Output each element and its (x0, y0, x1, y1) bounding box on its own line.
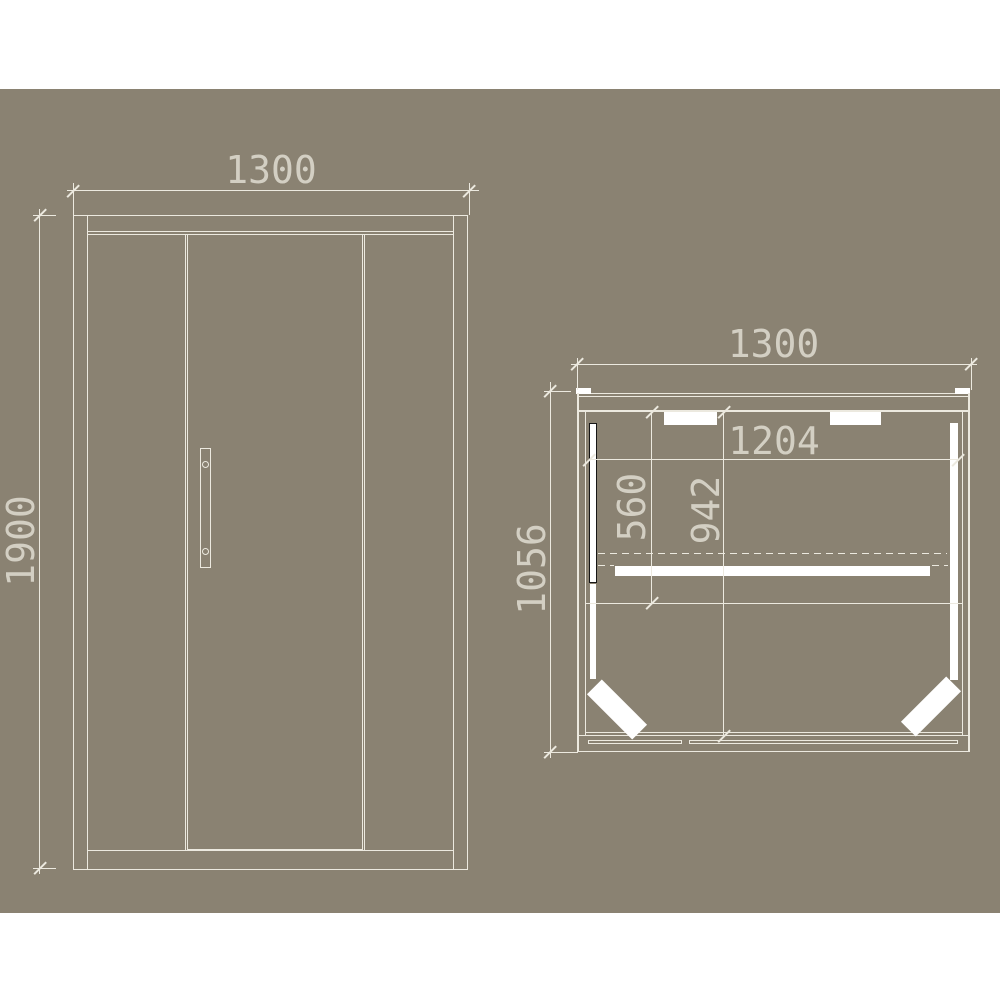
dim-ext-top (544, 391, 571, 392)
door-right-edge (362, 234, 363, 850)
left-glass-door-panel (589, 423, 596, 583)
dim-label-plan-width: 1300 (728, 325, 820, 363)
bench-front-hidden-line-right (932, 565, 948, 566)
bench-zone-line (585, 603, 962, 604)
front-band-inner-bottom (579, 410, 968, 411)
dim-label-interior-depth: 942 (687, 476, 725, 545)
left-panel-door-divider (185, 234, 186, 850)
dim-label-front-width: 1300 (225, 151, 317, 189)
dim-line (723, 412, 724, 736)
dim-ext-right (469, 183, 470, 215)
frame-right-inner-edge (453, 215, 454, 869)
left-glass-panel-extension (590, 584, 596, 680)
dim-ext-left (577, 358, 578, 390)
top-rail-bottom-line (87, 231, 454, 232)
page: 1300 1900 (0, 0, 1000, 1000)
handle-screw-top (202, 461, 209, 468)
back-track-right (689, 740, 958, 745)
dim-ext-top (33, 215, 56, 216)
dim-ext-bottom (544, 752, 578, 753)
corner-seat-right (900, 676, 960, 736)
frame-top-edge (73, 215, 468, 216)
door-roller-block-left (664, 412, 717, 425)
dim-label-plan-depth: 1056 (513, 523, 551, 615)
door-left-edge (187, 234, 188, 850)
frame-left-outer-edge (73, 215, 74, 869)
corner-seat-left (586, 679, 646, 739)
front-band-inner-top (579, 396, 968, 397)
right-wall-outer (968, 393, 970, 752)
back-wall-inner-line (585, 732, 962, 733)
dim-ext-bottom (33, 868, 56, 869)
door-roller-block-right (830, 412, 881, 425)
frame-left-inner-edge (87, 215, 88, 869)
drawing-canvas: 1300 1900 (0, 89, 1000, 913)
dim-label-seat-depth: 560 (613, 473, 651, 542)
back-track-left (588, 740, 682, 745)
frame-right-outer-edge (467, 215, 468, 869)
handle-screw-bottom (202, 548, 209, 555)
panel-top-line (87, 234, 454, 235)
left-wall-outer (577, 393, 579, 752)
bench-front-hidden-line-left (598, 565, 614, 566)
right-wall-inner (962, 412, 963, 735)
bench (615, 566, 930, 576)
dim-label-front-height: 1900 (2, 495, 40, 587)
dim-label-interior-width: 1204 (728, 422, 820, 460)
right-panel-door-divider (364, 234, 365, 850)
dim-ext-right (971, 358, 972, 390)
panel-bottom-line (87, 850, 454, 851)
dim-ext-left (73, 183, 74, 215)
frame-bottom-edge (73, 869, 468, 870)
